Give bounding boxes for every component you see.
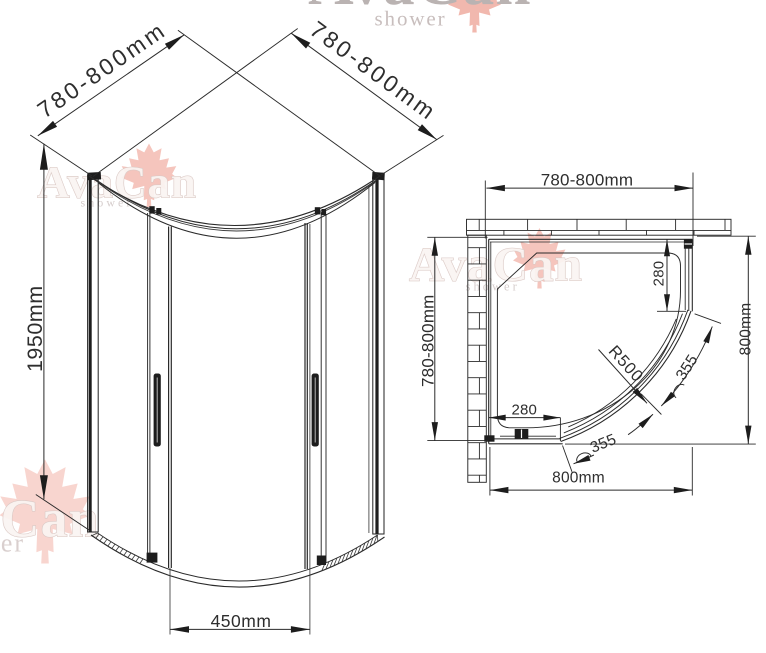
svg-text:1950mm: 1950mm xyxy=(23,285,47,372)
svg-text:280: 280 xyxy=(651,261,668,287)
svg-text:780-800mm: 780-800mm xyxy=(419,294,438,387)
svg-text:800mm: 800mm xyxy=(552,469,605,486)
svg-text:780-800mm: 780-800mm xyxy=(541,171,634,190)
svg-text:800mm: 800mm xyxy=(738,303,755,356)
svg-text:280: 280 xyxy=(511,401,537,418)
svg-text:shower: shower xyxy=(374,7,446,31)
svg-text:shower: shower xyxy=(0,529,25,558)
svg-text:shower: shower xyxy=(466,280,520,294)
svg-text:450mm: 450mm xyxy=(211,611,272,631)
